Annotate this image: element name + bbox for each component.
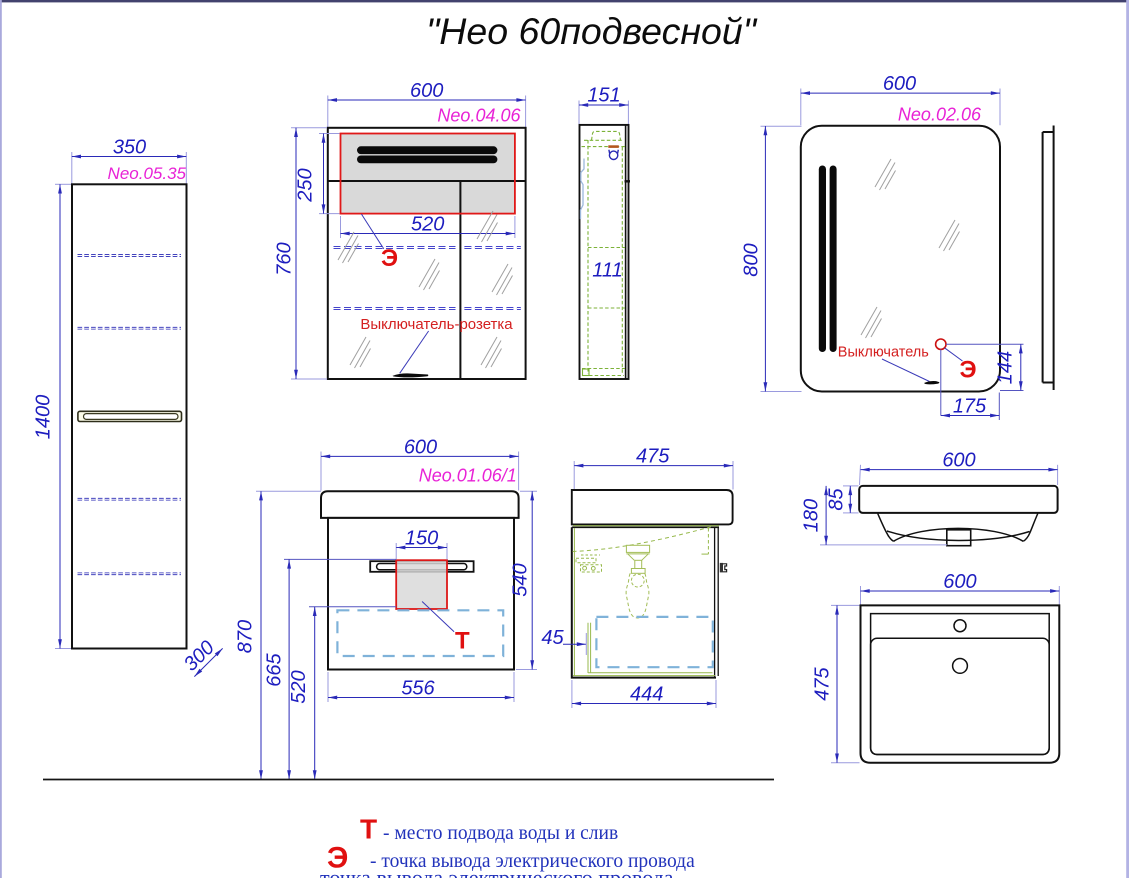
svg-text:600: 600 bbox=[883, 73, 916, 95]
svg-text:- место подвода воды и слив: - место подвода воды и слив bbox=[383, 823, 618, 844]
svg-text:45: 45 bbox=[541, 627, 564, 649]
svg-text:1400: 1400 bbox=[33, 395, 55, 440]
svg-text:111: 111 bbox=[592, 260, 622, 282]
svg-text:Neo.05.35: Neo.05.35 bbox=[108, 164, 187, 183]
svg-text:870: 870 bbox=[235, 620, 257, 653]
svg-text:Э: Э bbox=[960, 357, 977, 384]
svg-text:Neo.01.06/1: Neo.01.06/1 bbox=[419, 465, 517, 485]
svg-text:250: 250 bbox=[295, 168, 317, 202]
svg-text:600: 600 bbox=[943, 571, 976, 593]
svg-text:475: 475 bbox=[812, 666, 834, 700]
svg-text:Т: Т bbox=[360, 814, 377, 845]
svg-text:475: 475 bbox=[636, 446, 670, 468]
svg-text:175: 175 bbox=[953, 396, 987, 418]
svg-text:Выключатель-розетка: Выключатель-розетка bbox=[360, 316, 513, 333]
svg-text:800: 800 bbox=[741, 243, 763, 276]
svg-text:665: 665 bbox=[264, 652, 286, 686]
svg-text:151: 151 bbox=[587, 85, 620, 107]
svg-text:Neo.02.06: Neo.02.06 bbox=[898, 105, 982, 125]
svg-text:600: 600 bbox=[410, 80, 443, 102]
svg-text:"Нео 60подвесной": "Нео 60подвесной" bbox=[426, 10, 758, 52]
svg-text:760: 760 bbox=[274, 242, 296, 275]
svg-text:Э: Э bbox=[381, 245, 398, 272]
svg-text:350: 350 bbox=[113, 137, 146, 159]
svg-text:520: 520 bbox=[288, 670, 310, 703]
svg-text:180: 180 bbox=[801, 499, 823, 532]
svg-text:556: 556 bbox=[401, 678, 435, 700]
svg-text:144: 144 bbox=[995, 351, 1017, 384]
svg-text:Т: Т bbox=[455, 628, 470, 655]
svg-text:150: 150 bbox=[405, 528, 438, 550]
svg-text:444: 444 bbox=[630, 684, 663, 706]
svg-text:85: 85 bbox=[826, 488, 848, 511]
svg-text:600: 600 bbox=[942, 450, 975, 472]
svg-text:Выключатель: Выключатель bbox=[838, 345, 929, 361]
svg-text:600: 600 bbox=[404, 436, 437, 458]
svg-text:520: 520 bbox=[411, 214, 444, 236]
svg-text:540: 540 bbox=[510, 563, 532, 596]
svg-text:Neo.04.06: Neo.04.06 bbox=[437, 106, 521, 126]
